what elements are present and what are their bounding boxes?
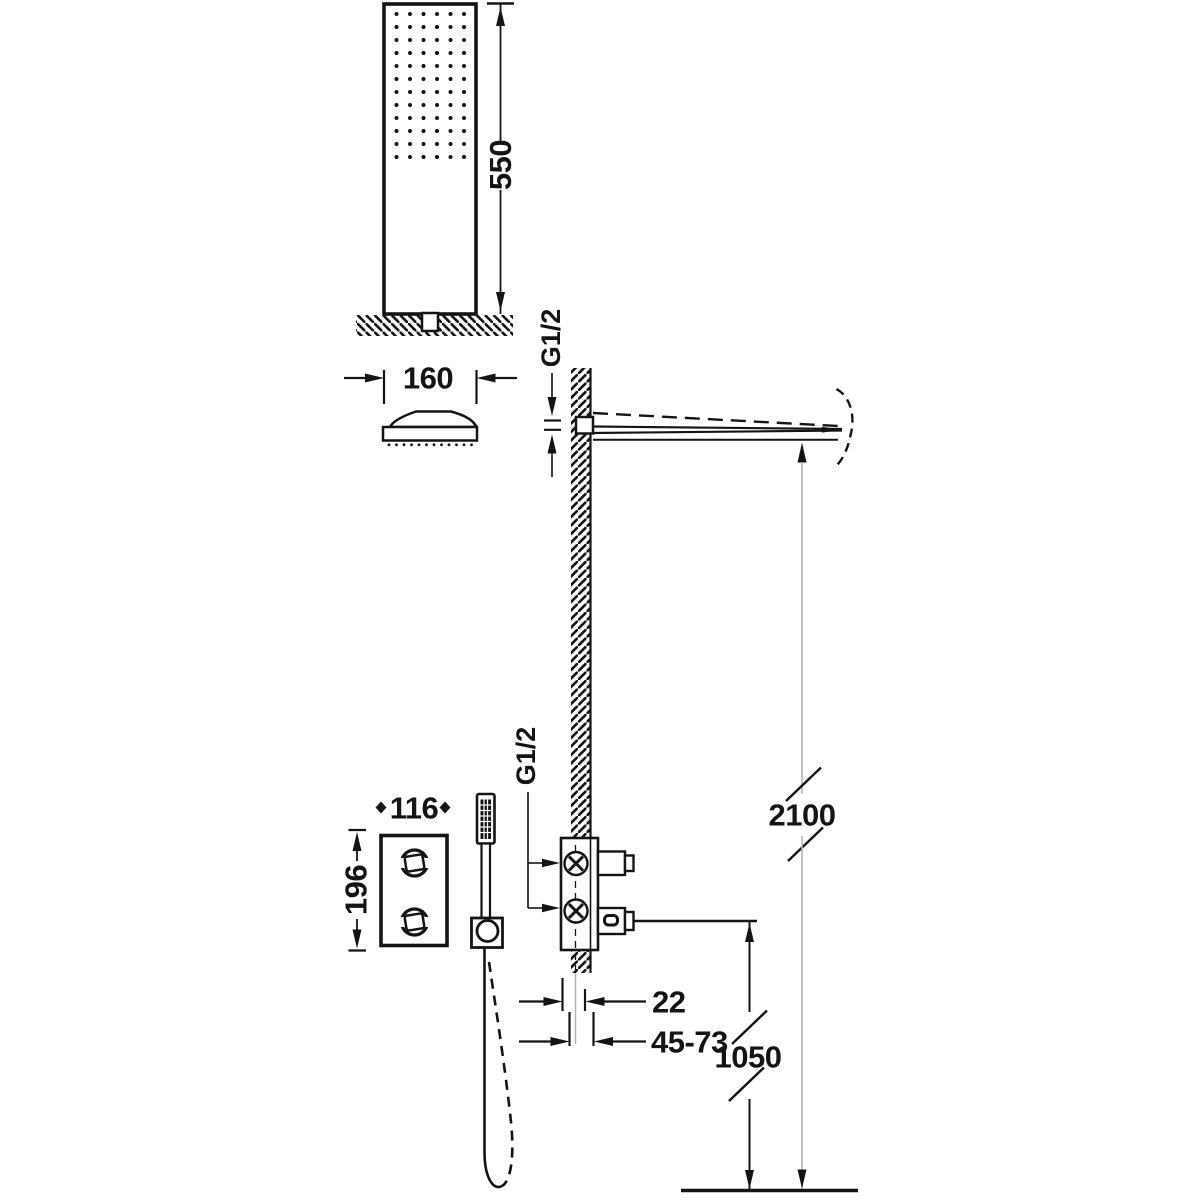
spray-dot bbox=[455, 443, 458, 446]
spray-dot bbox=[449, 38, 453, 42]
mixer-valve-upper bbox=[565, 852, 588, 875]
spray-dot bbox=[449, 103, 453, 107]
spray-dot bbox=[408, 38, 412, 42]
spray-dot bbox=[408, 12, 412, 16]
arm-wall-plate bbox=[576, 417, 593, 434]
head-connector bbox=[422, 313, 438, 331]
spray-dot bbox=[462, 116, 466, 120]
arm-connection-dim: G1/2 bbox=[536, 309, 566, 477]
spray-dot bbox=[435, 64, 439, 68]
spray-dot bbox=[462, 129, 466, 133]
spray-dot bbox=[462, 142, 466, 146]
spray-dot bbox=[462, 25, 466, 29]
head-profile-view: 160 bbox=[344, 361, 517, 447]
dim-116-marker-left bbox=[376, 802, 387, 814]
spray-dot bbox=[408, 116, 412, 120]
mixer-valve-lower bbox=[565, 900, 588, 923]
spray-dot bbox=[462, 64, 466, 68]
spray-dot bbox=[422, 77, 426, 81]
spray-dot bbox=[435, 129, 439, 133]
spray-dot bbox=[395, 64, 399, 68]
mixer-thread-callout: G1/2 bbox=[511, 727, 560, 912]
spray-dot bbox=[422, 90, 426, 94]
spray-dot bbox=[435, 103, 439, 107]
spray-dot bbox=[449, 12, 453, 16]
dim-160-label: 160 bbox=[403, 361, 453, 396]
spray-dot bbox=[435, 116, 439, 120]
spray-dot bbox=[403, 443, 406, 446]
spray-dot bbox=[435, 90, 439, 94]
spray-dot bbox=[449, 77, 453, 81]
spray-dot bbox=[449, 142, 453, 146]
dim-22: 22 bbox=[519, 978, 685, 1020]
spray-dot bbox=[462, 38, 466, 42]
mixer-outlet-upper bbox=[598, 852, 634, 876]
spray-dot bbox=[422, 25, 426, 29]
spray-dot bbox=[408, 155, 412, 159]
spray-dot bbox=[410, 443, 413, 446]
spray-dot bbox=[435, 12, 439, 16]
panel-knob-lower bbox=[400, 909, 430, 935]
spray-dot bbox=[449, 90, 453, 94]
spray-dot bbox=[435, 155, 439, 159]
spray-dot bbox=[422, 142, 426, 146]
spray-dot bbox=[422, 129, 426, 133]
spray-dot bbox=[408, 142, 412, 146]
hand-shower bbox=[472, 794, 513, 1187]
spray-dot bbox=[408, 90, 412, 94]
spray-dot bbox=[395, 129, 399, 133]
spray-dot bbox=[395, 77, 399, 81]
bracket-ring bbox=[477, 921, 498, 942]
dim-45-73: 45-73 bbox=[519, 1012, 728, 1060]
dim-22-label: 22 bbox=[652, 985, 685, 1020]
control-panel: 116 bbox=[376, 791, 451, 946]
profile-spray-dots bbox=[388, 443, 473, 446]
spray-dot bbox=[462, 155, 466, 159]
spray-dot bbox=[395, 25, 399, 29]
dim-550: 550 bbox=[483, 4, 518, 315]
spray-dot bbox=[435, 25, 439, 29]
spray-dot bbox=[449, 129, 453, 133]
spray-dot bbox=[433, 443, 436, 446]
spray-dot bbox=[449, 25, 453, 29]
spray-dot bbox=[388, 443, 391, 446]
spray-dot bbox=[422, 155, 426, 159]
arm-thread-label: G1/2 bbox=[536, 309, 566, 368]
spray-dot bbox=[422, 51, 426, 55]
spray-dot bbox=[425, 443, 428, 446]
dim-116-label: 116 bbox=[390, 791, 439, 826]
spray-dot bbox=[462, 12, 466, 16]
spray-dot bbox=[449, 155, 453, 159]
spray-dot bbox=[408, 25, 412, 29]
spray-dot bbox=[449, 116, 453, 120]
spray-dot bbox=[422, 103, 426, 107]
spray-dot bbox=[422, 116, 426, 120]
spray-dot bbox=[408, 77, 412, 81]
head-profile-dome bbox=[390, 412, 477, 428]
spray-dot bbox=[422, 38, 426, 42]
dim-550-label: 550 bbox=[483, 140, 518, 190]
hand-shower-stem bbox=[482, 844, 491, 920]
head-profile-base bbox=[383, 427, 477, 441]
hand-shower-hose-hidden bbox=[489, 962, 512, 1186]
spray-dot bbox=[449, 51, 453, 55]
spray-dot bbox=[462, 90, 466, 94]
spray-dot bbox=[435, 142, 439, 146]
spray-dot bbox=[395, 116, 399, 120]
spray-dot bbox=[395, 103, 399, 107]
spray-dot bbox=[395, 38, 399, 42]
spray-dot bbox=[422, 12, 426, 16]
dim-1050-label: 1050 bbox=[715, 1040, 782, 1075]
spray-dot bbox=[435, 51, 439, 55]
spray-dot bbox=[395, 142, 399, 146]
dim-2100-label: 2100 bbox=[769, 798, 836, 833]
spray-dot bbox=[435, 77, 439, 81]
installation-drawing: 550 160 G1/2 bbox=[0, 0, 1200, 1200]
spray-dot bbox=[462, 51, 466, 55]
shower-arm bbox=[576, 389, 852, 467]
mixer-thread-label: G1/2 bbox=[511, 727, 541, 786]
spray-dot bbox=[470, 443, 473, 446]
spray-dot bbox=[395, 90, 399, 94]
panel-knob-upper bbox=[400, 850, 430, 876]
dim-116-marker-right bbox=[440, 802, 451, 814]
spray-dot bbox=[463, 443, 466, 446]
spray-dot bbox=[408, 129, 412, 133]
spray-dot bbox=[448, 443, 451, 446]
spray-dot bbox=[408, 51, 412, 55]
spray-dot bbox=[422, 64, 426, 68]
spray-dot bbox=[395, 443, 398, 446]
spray-dot bbox=[395, 155, 399, 159]
mixer-outlet-lower bbox=[598, 908, 634, 934]
dim-196-label: 196 bbox=[339, 865, 374, 915]
head-front-body bbox=[384, 4, 476, 314]
spray-dot bbox=[449, 64, 453, 68]
spray-dot bbox=[462, 103, 466, 107]
spray-dot bbox=[418, 443, 421, 446]
dim-2100: 2100 bbox=[769, 443, 836, 1189]
spray-dot bbox=[435, 38, 439, 42]
mixer-outlet-slot bbox=[605, 916, 618, 926]
spray-dot bbox=[462, 77, 466, 81]
spray-dot bbox=[408, 64, 412, 68]
dim-1050: 1050 bbox=[715, 922, 782, 1189]
drawing-canvas: 550 160 G1/2 bbox=[0, 0, 1200, 1200]
spray-dot bbox=[395, 51, 399, 55]
spray-dot bbox=[440, 443, 443, 446]
dim-196: 196 bbox=[339, 830, 374, 951]
spray-dot bbox=[408, 103, 412, 107]
spray-dot bbox=[395, 12, 399, 16]
